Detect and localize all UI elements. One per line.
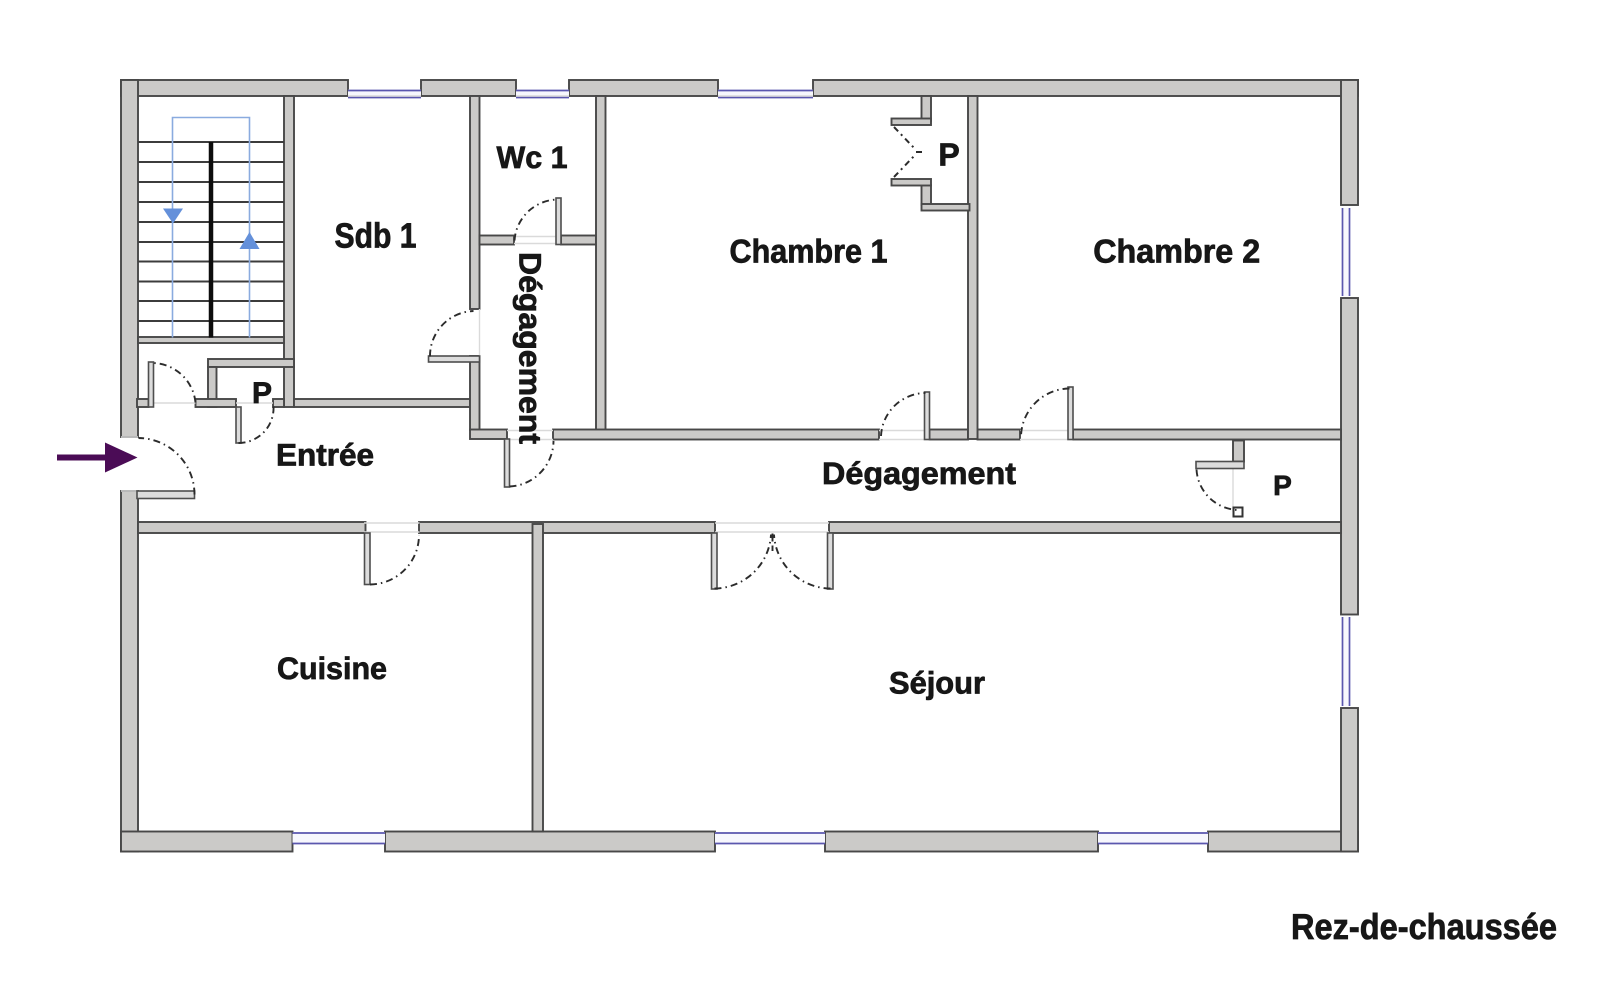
- svg-text:Sdb 1: Sdb 1: [335, 217, 417, 256]
- svg-text:Wc 1: Wc 1: [497, 140, 568, 175]
- svg-text:Rez-de-chaussée: Rez-de-chaussée: [1291, 906, 1557, 947]
- svg-text:P: P: [1273, 470, 1292, 501]
- svg-text:Chambre 1: Chambre 1: [730, 233, 888, 270]
- svg-text:Chambre 2: Chambre 2: [1093, 233, 1260, 270]
- svg-text:Séjour: Séjour: [889, 666, 985, 701]
- svg-text:Dégagement: Dégagement: [513, 252, 548, 444]
- svg-text:Dégagement: Dégagement: [822, 456, 1016, 491]
- svg-text:Entrée: Entrée: [276, 438, 374, 473]
- svg-text:P: P: [252, 377, 272, 410]
- svg-text:Cuisine: Cuisine: [277, 651, 387, 686]
- svg-text:P: P: [938, 137, 959, 173]
